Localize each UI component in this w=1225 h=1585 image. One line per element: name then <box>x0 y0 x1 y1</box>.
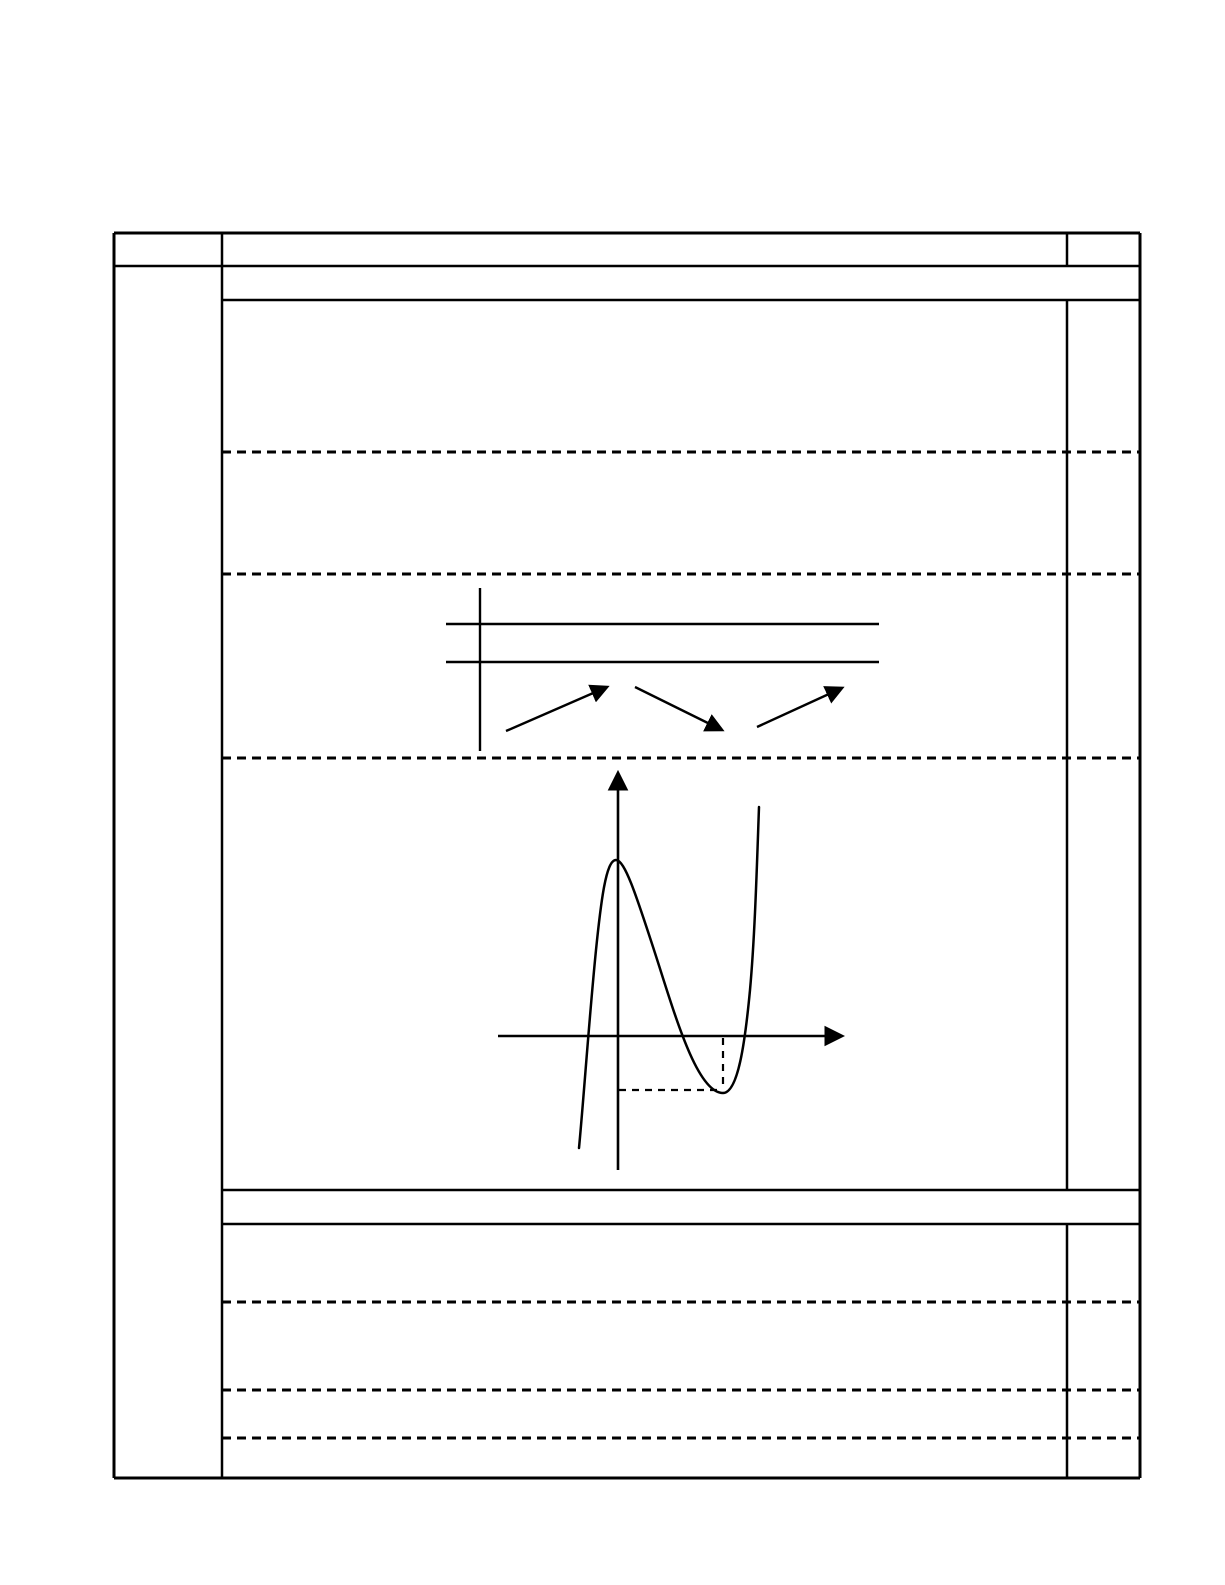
document-page <box>0 0 1225 1585</box>
page-canvas <box>0 0 1225 1585</box>
function-graph <box>498 773 842 1170</box>
marking-table-lines <box>114 233 1140 1478</box>
cubic-curve <box>579 807 759 1148</box>
trend-arrow-increasing <box>506 687 607 731</box>
trend-arrow-increasing <box>757 688 842 727</box>
sign-diagram <box>446 588 879 751</box>
trend-arrow-decreasing <box>635 687 722 730</box>
